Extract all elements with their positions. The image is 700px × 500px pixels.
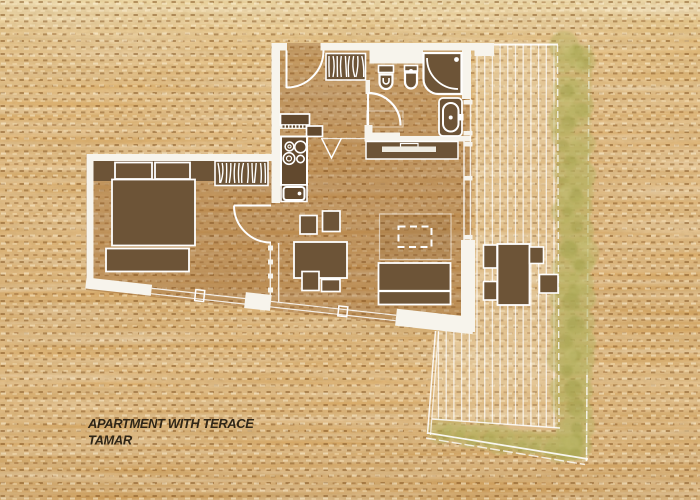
svg-text:TAMAR: TAMAR xyxy=(88,433,133,448)
svg-text:APARTMENT WITH TERACE: APARTMENT WITH TERACE xyxy=(87,416,254,431)
